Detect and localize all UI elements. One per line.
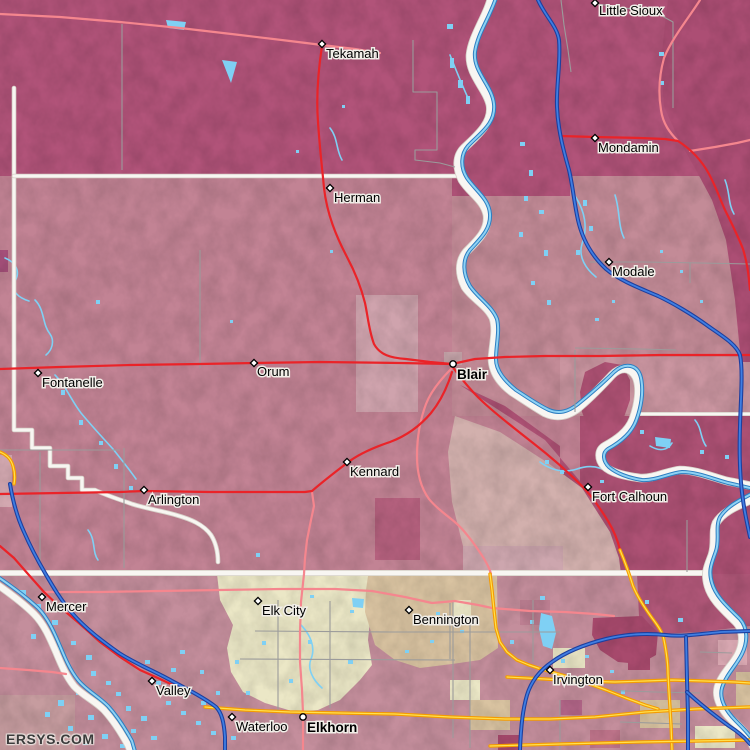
wetland [71, 641, 76, 645]
wetland [129, 486, 133, 490]
place-label-arlington: Arlington [148, 492, 199, 507]
place-label-kennard: Kennard [350, 464, 399, 479]
wetland [561, 659, 565, 663]
wetland [31, 634, 36, 639]
wetland [196, 721, 201, 725]
wetland [350, 610, 354, 613]
place-label-elkhorn: Elkhorn [307, 720, 357, 735]
lake [352, 598, 364, 608]
wetland [99, 441, 103, 445]
wetland [289, 679, 293, 683]
wetland [262, 641, 266, 645]
wetland [45, 712, 50, 717]
wetland [560, 470, 564, 474]
wetland [180, 650, 185, 654]
wetland [131, 729, 136, 733]
wetland [235, 660, 239, 664]
wetland [640, 430, 644, 434]
wetland [246, 691, 250, 695]
wetland [585, 655, 589, 658]
wetland [583, 200, 587, 206]
place-label-bennington: Bennington [413, 612, 479, 627]
wetland [405, 650, 409, 653]
map-viewport[interactable]: Little SiouxTekamahMondaminHermanModaleO… [0, 0, 750, 750]
wetland [544, 250, 548, 256]
wetland [645, 600, 649, 604]
town-marker-blair [450, 361, 456, 367]
wetland [539, 210, 544, 214]
wetland [458, 80, 463, 88]
town-marker-elkhorn [300, 714, 306, 720]
wetland [510, 640, 514, 644]
wetland [91, 671, 96, 676]
place-label-herman: Herman [334, 190, 380, 205]
wetland [450, 58, 454, 68]
wetland [230, 320, 233, 323]
wetland [520, 142, 525, 146]
place-label-fontanelle: Fontanelle [42, 375, 103, 390]
wetland [540, 596, 545, 600]
place-label-mercer: Mercer [46, 599, 87, 614]
wetland [330, 250, 333, 253]
wetland [531, 281, 535, 285]
wetland [171, 668, 176, 672]
wetland [308, 640, 312, 644]
wetland [151, 736, 157, 740]
wetland [52, 620, 58, 625]
wetland [595, 318, 599, 321]
place-label-fort-calhoun: Fort Calhoun [592, 489, 667, 504]
wetland [547, 300, 551, 305]
wetland [348, 660, 353, 664]
wetland [524, 196, 528, 201]
wetland [659, 52, 664, 56]
wetland [545, 460, 549, 464]
wetland [114, 464, 118, 469]
wetland [102, 734, 108, 739]
wetland [447, 24, 453, 29]
wetland [310, 595, 314, 598]
wetland [96, 300, 100, 304]
wetland [660, 250, 663, 253]
place-label-mondamin: Mondamin [598, 140, 659, 155]
wetland [680, 270, 683, 273]
place-label-irvington: Irvington [553, 672, 603, 687]
wetland [612, 300, 615, 303]
wetland [216, 691, 220, 695]
wetland [79, 420, 83, 425]
wetland [678, 618, 683, 622]
map-canvas[interactable]: Little SiouxTekamahMondaminHermanModaleO… [0, 0, 750, 750]
wetland [519, 232, 523, 237]
wetland [211, 731, 216, 735]
place-label-orum: Orum [257, 364, 290, 379]
wetland [589, 226, 593, 231]
place-label-little-sioux: Little Sioux [599, 3, 663, 18]
place-label-modale: Modale [612, 264, 655, 279]
wetland [61, 390, 65, 395]
wetland [145, 660, 150, 664]
wetland [296, 150, 299, 153]
wetland [88, 715, 94, 720]
wetland [116, 692, 121, 696]
place-label-tekamah: Tekamah [326, 46, 379, 61]
wetland [181, 711, 186, 715]
wetland [256, 553, 260, 557]
wetland [466, 96, 470, 104]
place-label-waterloo: Waterloo [236, 719, 288, 734]
place-label-valley: Valley [156, 683, 191, 698]
wetland [126, 706, 131, 711]
wetland [700, 300, 703, 303]
wetland [231, 736, 236, 740]
wetland [200, 670, 204, 674]
wetland [166, 701, 171, 705]
wetland [725, 455, 729, 459]
place-label-blair: Blair [457, 367, 488, 382]
wetland [141, 716, 147, 721]
wetland [86, 655, 92, 660]
wetland [700, 450, 704, 454]
wetland [600, 480, 604, 483]
wetland [106, 681, 111, 685]
wetland [610, 670, 614, 673]
wetland [576, 250, 580, 255]
watermark: ERSYS.COM [6, 731, 95, 747]
wetland [529, 170, 533, 176]
place-label-elk-city: Elk City [262, 603, 307, 618]
wetland [430, 640, 434, 643]
wetland [342, 105, 345, 108]
wetland [58, 700, 64, 706]
